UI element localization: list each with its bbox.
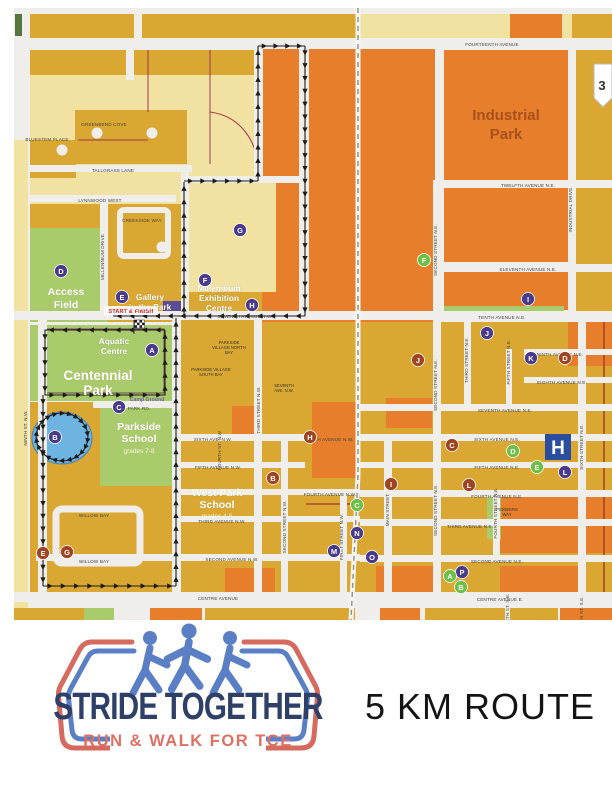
place-label: grades 4-6 xyxy=(201,513,232,520)
street-label: SECOND STREET N.E. xyxy=(433,359,438,411)
street-label: FIFTH AVENUE N.E. xyxy=(474,465,519,470)
marker-O-purple: O xyxy=(366,551,379,564)
street-label: SIXTH STREET N.E. xyxy=(579,424,584,470)
svg-text:G: G xyxy=(237,226,243,235)
svg-text:E: E xyxy=(534,463,539,472)
street-label: FOURTH AVENUE N.W. xyxy=(304,492,357,497)
street-label: FOURTH ST. S.E. xyxy=(505,593,510,620)
route-distance-label: 5 KM ROUTE xyxy=(352,686,608,728)
marker-F-green: F xyxy=(418,254,431,267)
marker-B-purple: B xyxy=(49,431,62,444)
marker-E-brown: E xyxy=(37,547,50,560)
street-label: SEVENTH AVENUE N.E. xyxy=(478,408,532,413)
street-label: SIXTH AVE. N.W. xyxy=(194,437,232,442)
street-label: WILLOW BAY xyxy=(79,559,109,564)
marker-M-purple: M xyxy=(328,545,341,558)
svg-text:C: C xyxy=(116,403,122,412)
street-label: FIFTH STREET N.E. xyxy=(506,339,511,384)
street-label: SECOND STREET N.W. xyxy=(282,501,287,554)
street-label: MAIN STREET xyxy=(385,494,390,527)
street-label: EIGHTH AVENUE N.E. xyxy=(537,380,587,385)
marker-D-purple: D xyxy=(55,265,68,278)
marker-L-brown: L xyxy=(463,479,476,492)
svg-text:L: L xyxy=(467,481,472,490)
svg-text:H: H xyxy=(551,438,565,459)
place-label: SEVENTHAVE. N.W. xyxy=(274,383,294,393)
marker-D-green: D xyxy=(507,445,520,458)
marker-D-brown: D xyxy=(559,352,572,365)
street-label: SECOND AVENUE N.E. xyxy=(471,559,523,564)
place-label: AquaticCentre xyxy=(99,336,130,356)
svg-text:E: E xyxy=(119,293,124,302)
street-label: WILLOW BAY xyxy=(79,513,109,518)
marker-G-purple: G xyxy=(234,224,247,237)
street-label: SIXTH ST. S.E. xyxy=(579,596,584,620)
street-label: SEVENTH AVENUE N.W. xyxy=(217,314,272,319)
svg-text:C: C xyxy=(449,441,455,450)
event-logo: STRIDE TOGETHER RUN & WALK FOR TCE xyxy=(38,622,338,774)
marker-E-purple: E xyxy=(116,291,129,304)
svg-text:B: B xyxy=(270,474,276,483)
street-label: FOURTH ST. N.W. xyxy=(217,430,222,470)
footer: STRIDE TOGETHER RUN & WALK FOR TCE 5 KM … xyxy=(0,620,612,791)
street-label: LYNNWOOD WEST xyxy=(78,198,121,203)
street-label: PARK RD. xyxy=(128,406,151,411)
svg-text:I: I xyxy=(390,480,392,489)
street-label: GREENBEND COVE xyxy=(81,122,127,127)
marker-N-purple: N xyxy=(351,527,364,540)
svg-text:O: O xyxy=(369,553,375,562)
marker-I-brown: I xyxy=(385,478,398,491)
svg-text:G: G xyxy=(64,548,70,557)
street-label: THIRD STREET N.E. xyxy=(464,337,469,383)
street-label: TWELFTH AVENUE N.E. xyxy=(501,183,555,188)
marker-H-hospital: H xyxy=(545,434,571,460)
walking-figures-icon xyxy=(133,623,247,693)
marker-L-purple: L xyxy=(559,466,572,479)
marker-J-purple: J xyxy=(481,327,494,340)
street-label: CENTRE AVENUE E. xyxy=(477,597,523,602)
marker-C-brown: C xyxy=(446,439,459,452)
street-label: THIRD AVENUE N.E. xyxy=(447,524,493,529)
highway-number: 3 xyxy=(598,78,605,93)
svg-text:A: A xyxy=(447,572,453,581)
svg-text:D: D xyxy=(58,267,64,276)
highway-shield: 3 xyxy=(594,64,612,107)
svg-text:H: H xyxy=(249,301,254,310)
place-label: Camp Ground xyxy=(130,397,165,403)
svg-text:L: L xyxy=(563,468,568,477)
street-label: TALLGRASS LANE xyxy=(92,168,134,173)
street-label: SECOND STREET N.E. xyxy=(433,484,438,536)
street-label: MILLENNIUM DRIVE xyxy=(100,234,105,280)
svg-text:B: B xyxy=(458,583,464,592)
place-label: grades 7-8 xyxy=(123,448,154,455)
svg-text:P: P xyxy=(459,568,464,577)
marker-B-green: B xyxy=(455,581,468,594)
svg-text:M: M xyxy=(331,547,337,556)
marker-B-brown: B xyxy=(267,472,280,485)
street-label: THIRD STREET N.W. xyxy=(256,386,261,433)
marker-F-purple: F xyxy=(199,274,212,287)
street-label: SECOND AVENUE N.W. xyxy=(205,557,258,562)
marker-G-brown: G xyxy=(61,546,74,559)
street-label: FOURTEENTH AVENUE xyxy=(465,42,518,47)
street-label: TENTH AVENUE N.E. xyxy=(478,315,526,320)
street-label: SECOND STREET N.E. xyxy=(433,224,438,276)
svg-text:C: C xyxy=(354,501,360,510)
logo-tagline: RUN & WALK FOR TCE xyxy=(83,732,292,750)
svg-text:B: B xyxy=(52,433,58,442)
marker-C-green: C xyxy=(351,499,364,512)
street-label: ELEVENTH AVENUE N.E. xyxy=(499,267,556,272)
marker-A-purple: A xyxy=(146,344,159,357)
street-label: SIXTH AVENUE N.E. xyxy=(474,437,520,442)
svg-text:D: D xyxy=(510,447,516,456)
svg-text:E: E xyxy=(40,549,45,558)
svg-text:I: I xyxy=(527,295,529,304)
street-label: BLUESTEM PLACE xyxy=(25,137,68,142)
marker-H-brown: H xyxy=(304,431,317,444)
svg-text:F: F xyxy=(422,256,427,265)
marker-I-purple: I xyxy=(522,293,535,306)
marker-C-purple: C xyxy=(113,401,126,414)
page: START & FINISH 3 FOURTEENTH AVENUETWELFT… xyxy=(0,0,612,791)
street-label: INDUSTRIAL DRIVE xyxy=(568,188,573,233)
svg-text:F: F xyxy=(203,276,208,285)
svg-text:J: J xyxy=(485,329,489,338)
svg-text:J: J xyxy=(416,356,420,365)
street-label: FOURTH STREET N.E. xyxy=(493,487,498,538)
route-map: START & FINISH 3 FOURTEENTH AVENUETWELFT… xyxy=(0,0,612,620)
svg-text:H: H xyxy=(307,433,312,442)
street-label: CENTRE AVENUE xyxy=(198,596,238,601)
street-label: CREEKSIDE WAY xyxy=(122,218,162,223)
marker-A-green: A xyxy=(444,570,457,583)
svg-text:D: D xyxy=(562,354,568,363)
logo-title: STRIDE TOGETHER xyxy=(53,686,322,728)
svg-text:N: N xyxy=(354,529,359,538)
street-label: NINTH ST. N.W. xyxy=(23,410,28,445)
marker-K-purple: K xyxy=(525,352,538,365)
marker-P-purple: P xyxy=(456,566,469,579)
svg-text:K: K xyxy=(528,354,534,363)
marker-H-purple: H xyxy=(246,299,259,312)
svg-text:A: A xyxy=(149,346,155,355)
place-label: ParksideSchool xyxy=(117,421,161,445)
marker-E-green: E xyxy=(531,461,544,474)
marker-J-brown: J xyxy=(412,354,425,367)
